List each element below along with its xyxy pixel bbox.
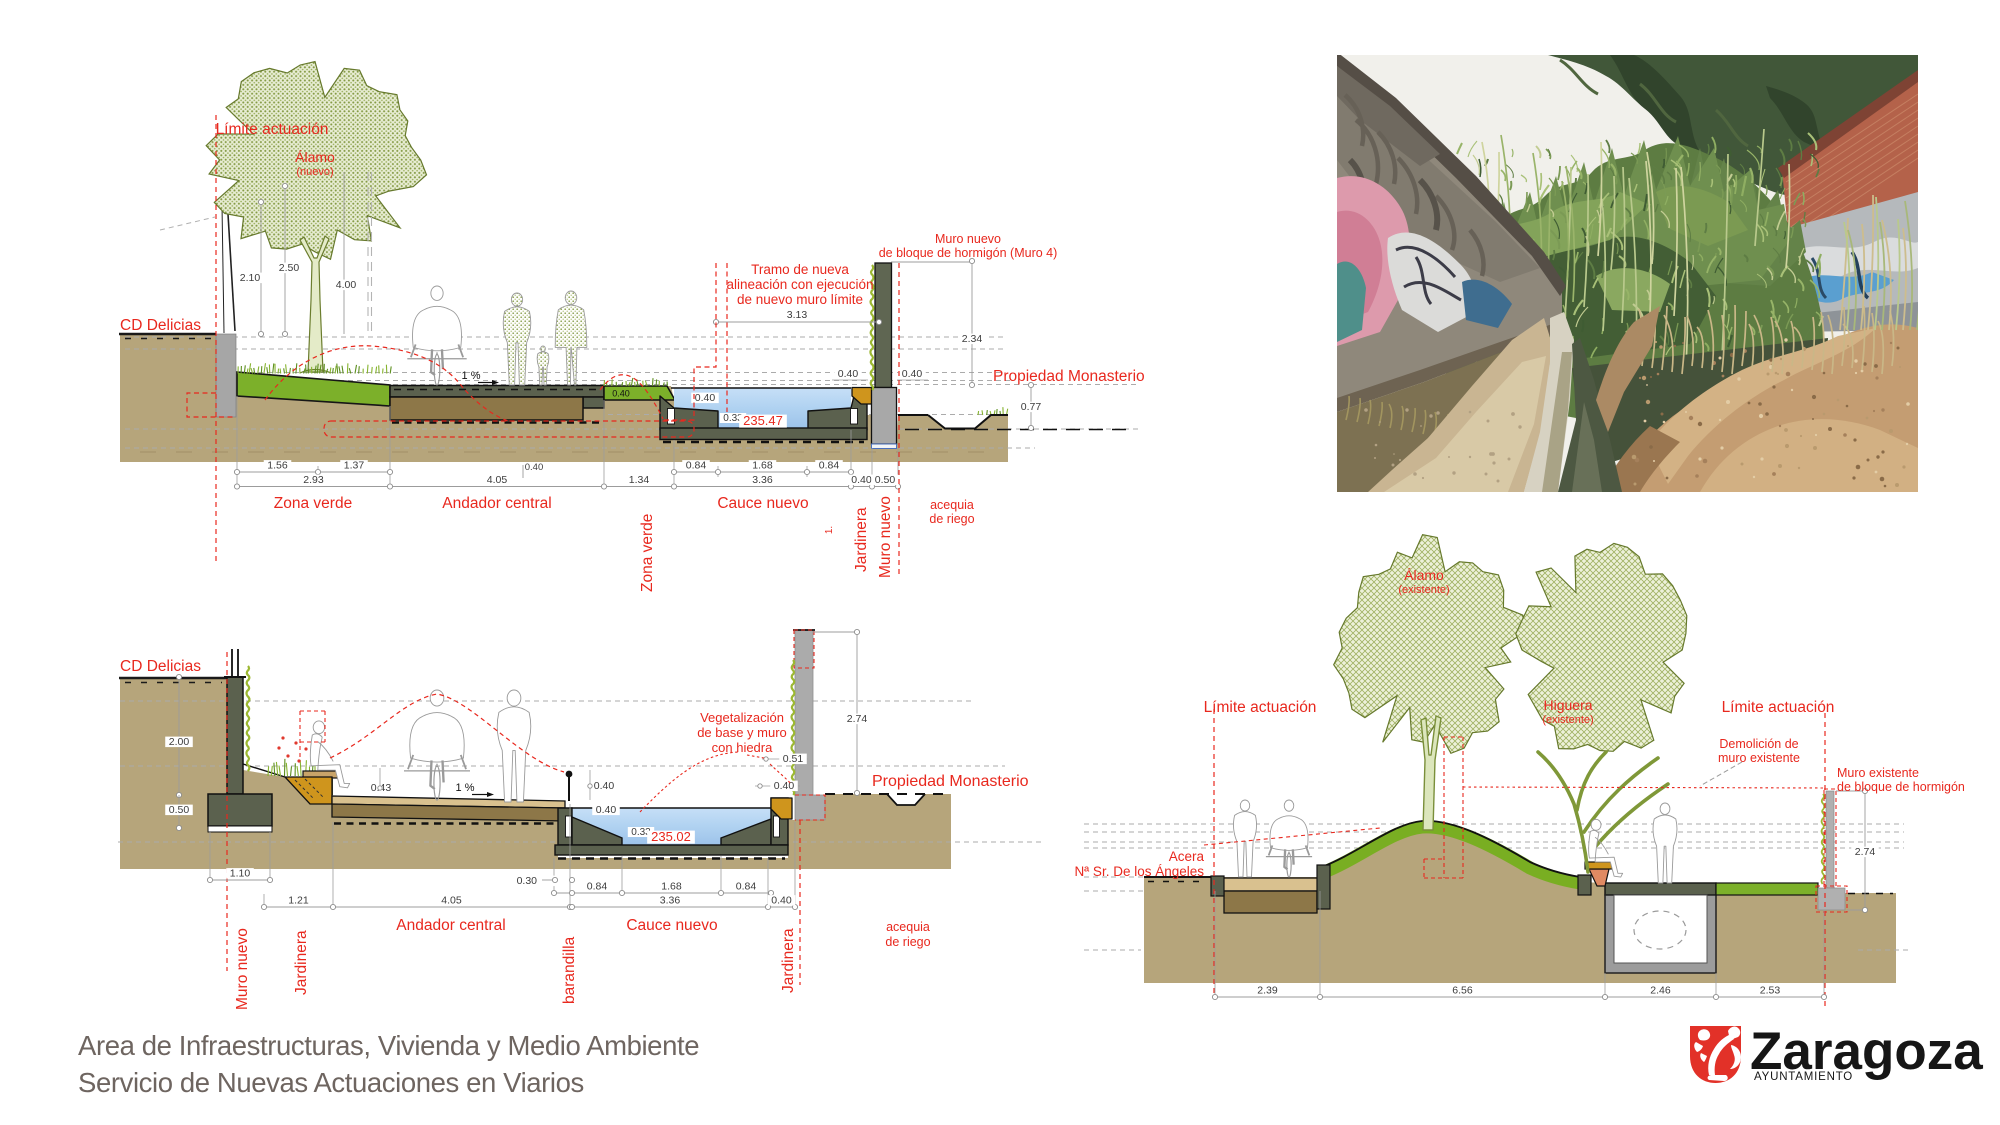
svg-text:Servicio de Nuevas Actuaciones: Servicio de Nuevas Actuaciones en Viario… [78,1067,584,1098]
svg-text:acequia: acequia [930,498,974,512]
svg-text:1 %: 1 % [462,370,481,382]
svg-text:2.34: 2.34 [962,333,983,345]
svg-text:1.10: 1.10 [230,868,251,880]
svg-text:Jardinera: Jardinera [293,930,310,995]
svg-text:de riego: de riego [929,512,974,526]
svg-text:3.13: 3.13 [787,309,808,321]
svg-text:Propiedad Monasterio: Propiedad Monasterio [993,368,1145,385]
svg-text:2.50: 2.50 [279,262,300,274]
svg-text:Propiedad Monasterio: Propiedad Monasterio [872,773,1029,790]
svg-text:Higuera: Higuera [1543,697,1592,713]
svg-text:0.40: 0.40 [695,392,716,404]
svg-text:con hiedra: con hiedra [712,740,773,755]
svg-text:Vegetalización: Vegetalización [700,710,784,725]
svg-text:0.40: 0.40 [771,895,792,907]
svg-text:0.40: 0.40 [612,389,630,399]
svg-text:Tramo de nueva: Tramo de nueva [751,262,849,277]
svg-text:Demolición de: Demolición de [1719,737,1798,751]
svg-text:1.21: 1.21 [288,895,309,907]
svg-text:AYUNTAMIENTO: AYUNTAMIENTO [1754,1071,1853,1083]
svg-text:muro existente: muro existente [1718,751,1800,765]
svg-text:Nª Sr. De los Ángeles: Nª Sr. De los Ángeles [1074,864,1204,879]
svg-text:235.02: 235.02 [651,829,691,844]
svg-text:3.36: 3.36 [752,474,773,486]
svg-text:(nuevo): (nuevo) [296,166,333,178]
svg-text:4.00: 4.00 [336,279,357,291]
svg-text:Acera: Acera [1169,849,1205,864]
svg-text:CD Delicias: CD Delicias [120,658,201,675]
svg-text:1.34: 1.34 [629,474,650,486]
svg-text:0.30: 0.30 [517,875,538,887]
svg-text:Andador central: Andador central [396,917,505,934]
svg-text:Muro nuevo: Muro nuevo [234,928,251,1010]
svg-text:Álamo: Álamo [295,149,335,165]
svg-text:0.40: 0.40 [596,804,617,816]
svg-text:0.84: 0.84 [686,460,707,472]
svg-text:Zona verde: Zona verde [639,514,656,592]
svg-text:0.40: 0.40 [525,462,544,473]
svg-text:de riego: de riego [885,935,930,949]
svg-text:0.40: 0.40 [838,368,859,380]
svg-text:Límite actuación: Límite actuación [1204,699,1317,716]
svg-text:2.00: 2.00 [169,736,190,748]
svg-text:Cauce nuevo: Cauce nuevo [626,917,717,934]
svg-text:2.74: 2.74 [847,713,868,725]
svg-text:Jardinera: Jardinera [853,507,870,572]
svg-text:0.40: 0.40 [902,368,923,380]
svg-text:235.47: 235.47 [743,413,783,428]
svg-text:2.53: 2.53 [1760,985,1781,997]
svg-text:de bloque de hormigón: de bloque de hormigón [1837,780,1965,794]
svg-text:0.50: 0.50 [875,474,896,486]
svg-text:Cauce nuevo: Cauce nuevo [717,495,808,512]
svg-text:Muro nuevo: Muro nuevo [877,496,894,578]
svg-text:de bloque de hormigón (Muro 4): de bloque de hormigón (Muro 4) [879,246,1058,260]
svg-text:Límite actuación: Límite actuación [1722,699,1835,716]
svg-text:1 %: 1 % [456,782,475,794]
svg-text:3.36: 3.36 [660,895,681,907]
svg-text:1.37: 1.37 [344,460,365,472]
svg-text:2.39: 2.39 [1257,985,1278,997]
svg-text:Jardinera: Jardinera [780,928,797,993]
svg-text:2.74: 2.74 [1855,846,1876,858]
svg-text:1.68: 1.68 [661,881,682,893]
svg-text:2.93: 2.93 [303,474,324,486]
svg-text:Andador central: Andador central [442,495,551,512]
svg-text:4.05: 4.05 [487,474,508,486]
svg-text:Álamo: Álamo [1404,567,1444,583]
svg-text:0.84: 0.84 [736,881,757,893]
svg-text:1.: 1. [824,526,835,534]
svg-text:(existente): (existente) [1398,584,1449,596]
svg-text:acequia: acequia [886,920,930,934]
svg-text:4.05: 4.05 [441,895,462,907]
svg-text:(existente): (existente) [1542,714,1593,726]
svg-text:alineación con ejecución: alineación con ejecución [726,277,873,292]
svg-text:de base y muro: de base y muro [697,725,787,740]
svg-text:0.84: 0.84 [587,881,608,893]
svg-text:1.68: 1.68 [752,460,773,472]
svg-text:Zona verde: Zona verde [274,495,352,512]
svg-text:0.40: 0.40 [774,780,795,792]
svg-text:6.56: 6.56 [1452,985,1473,997]
svg-text:Límite actuación: Límite actuación [216,121,329,138]
svg-text:0.77: 0.77 [1021,401,1042,413]
svg-text:Area de Infraestructuras, Vivi: Area de Infraestructuras, Vivienda y Med… [78,1030,699,1061]
svg-text:Muro existente: Muro existente [1837,766,1919,780]
svg-text:CD Delicias: CD Delicias [120,317,201,334]
svg-text:0.40: 0.40 [851,474,872,486]
svg-text:2.10: 2.10 [240,272,261,284]
svg-text:1.56: 1.56 [267,460,288,472]
svg-text:0.50: 0.50 [169,804,190,816]
svg-text:2.46: 2.46 [1650,985,1671,997]
svg-text:0.84: 0.84 [819,460,840,472]
svg-text:Muro nuevo: Muro nuevo [935,232,1001,246]
svg-text:0.40: 0.40 [594,780,615,792]
svg-text:barandilla: barandilla [561,936,578,1004]
svg-text:de nuevo muro límite: de nuevo muro límite [737,292,863,307]
svg-text:0.51: 0.51 [783,753,804,765]
